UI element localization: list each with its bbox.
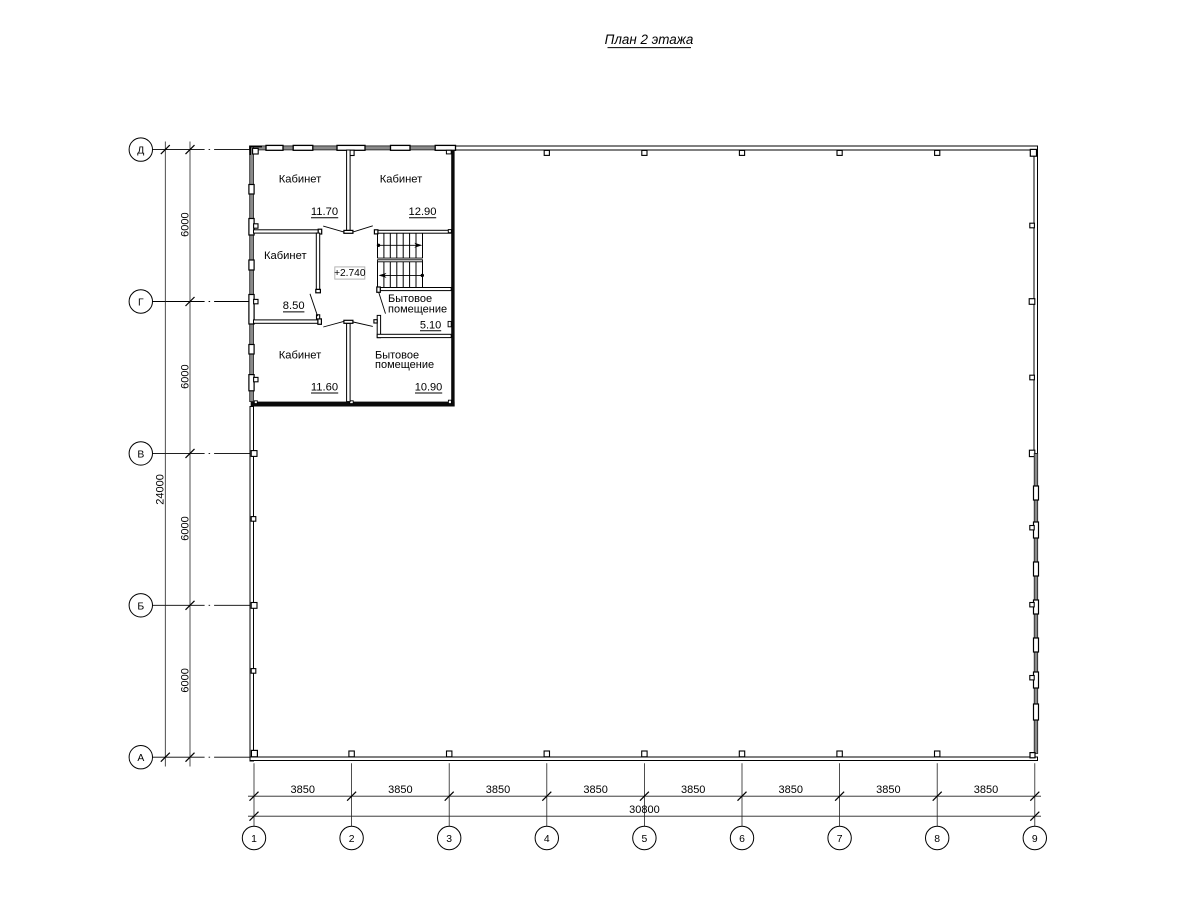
svg-text:Г: Г <box>138 298 144 309</box>
svg-text:План 2 этажа: План 2 этажа <box>605 32 694 47</box>
svg-text:Д: Д <box>137 146 144 157</box>
svg-text:Б: Б <box>137 601 144 612</box>
svg-text:3850: 3850 <box>486 784 510 796</box>
svg-text:А: А <box>137 753 144 764</box>
svg-text:12.90: 12.90 <box>409 206 437 218</box>
svg-text:3: 3 <box>446 834 452 845</box>
svg-text:помещение: помещение <box>375 359 434 371</box>
svg-text:4: 4 <box>544 834 550 845</box>
svg-text:3850: 3850 <box>388 784 412 796</box>
svg-text:1: 1 <box>251 834 257 845</box>
svg-text:8.50: 8.50 <box>283 300 305 312</box>
svg-text:Кабинет: Кабинет <box>264 250 307 262</box>
svg-text:5: 5 <box>642 834 648 845</box>
svg-text:Кабинет: Кабинет <box>380 173 423 185</box>
svg-text:9: 9 <box>1032 834 1038 845</box>
svg-text:10.90: 10.90 <box>415 381 443 393</box>
svg-text:11.60: 11.60 <box>311 381 338 393</box>
svg-text:11.70: 11.70 <box>311 206 338 218</box>
svg-text:В: В <box>137 449 144 460</box>
svg-text:7: 7 <box>837 834 843 845</box>
svg-text:3850: 3850 <box>779 784 803 796</box>
svg-text:6000: 6000 <box>179 516 191 540</box>
svg-text:2: 2 <box>349 834 355 845</box>
svg-text:3850: 3850 <box>583 784 607 796</box>
svg-text:24000: 24000 <box>155 474 167 505</box>
svg-text:Кабинет: Кабинет <box>279 173 322 185</box>
svg-text:6000: 6000 <box>179 364 191 388</box>
svg-text:6: 6 <box>739 834 745 845</box>
svg-text:+2.740: +2.740 <box>334 268 366 279</box>
svg-text:Кабинет: Кабинет <box>279 349 322 361</box>
svg-text:помещение: помещение <box>388 303 447 315</box>
svg-text:6000: 6000 <box>179 668 191 692</box>
svg-text:3850: 3850 <box>974 784 998 796</box>
svg-text:30800: 30800 <box>629 804 660 816</box>
svg-text:3850: 3850 <box>681 784 705 796</box>
svg-text:5.10: 5.10 <box>420 320 441 332</box>
svg-text:6000: 6000 <box>179 212 191 236</box>
svg-text:3850: 3850 <box>876 784 900 796</box>
svg-text:3850: 3850 <box>291 784 315 796</box>
svg-text:8: 8 <box>934 834 940 845</box>
